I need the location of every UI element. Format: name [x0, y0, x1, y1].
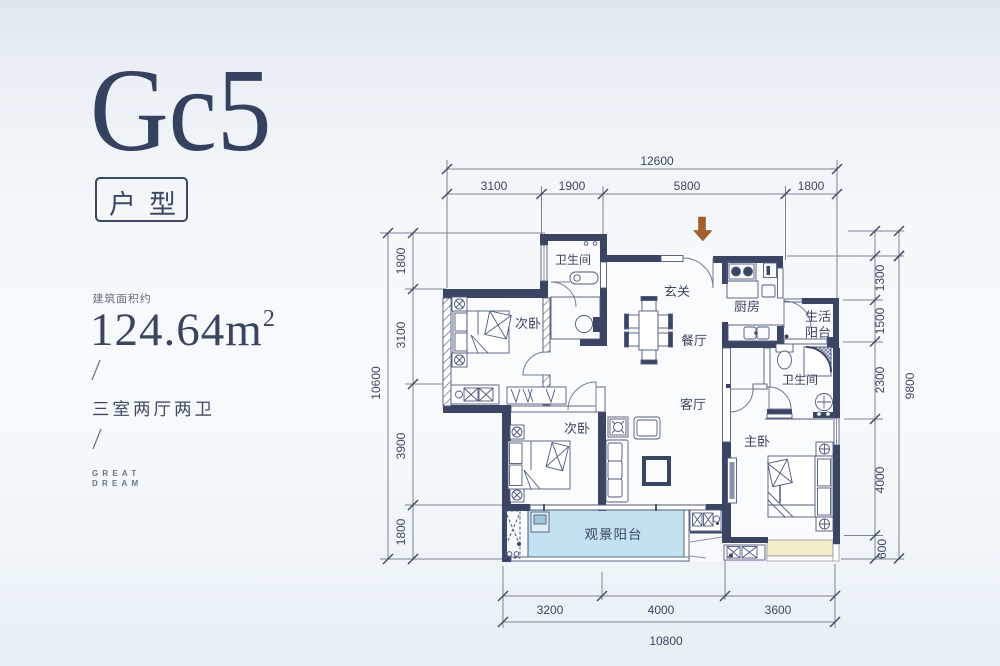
svg-text:3100: 3100 [481, 179, 508, 193]
svg-text:10600: 10600 [369, 366, 383, 400]
svg-text:3900: 3900 [394, 432, 408, 459]
svg-text:1300: 1300 [873, 264, 887, 291]
svg-text:1800: 1800 [394, 518, 408, 545]
svg-text:3100: 3100 [394, 321, 408, 348]
svg-text:4000: 4000 [648, 603, 675, 617]
svg-text:9800: 9800 [903, 372, 917, 399]
svg-text:5800: 5800 [674, 179, 701, 193]
svg-text:10800: 10800 [649, 634, 683, 648]
svg-text:1800: 1800 [394, 247, 408, 274]
svg-text:600: 600 [875, 539, 889, 559]
svg-text:4000: 4000 [873, 466, 887, 493]
svg-text:1500: 1500 [873, 307, 887, 334]
svg-text:12600: 12600 [640, 154, 674, 168]
svg-text:3200: 3200 [537, 603, 564, 617]
svg-text:1900: 1900 [559, 179, 586, 193]
svg-text:1800: 1800 [798, 179, 825, 193]
svg-text:2300: 2300 [873, 366, 887, 393]
svg-text:3600: 3600 [765, 603, 792, 617]
